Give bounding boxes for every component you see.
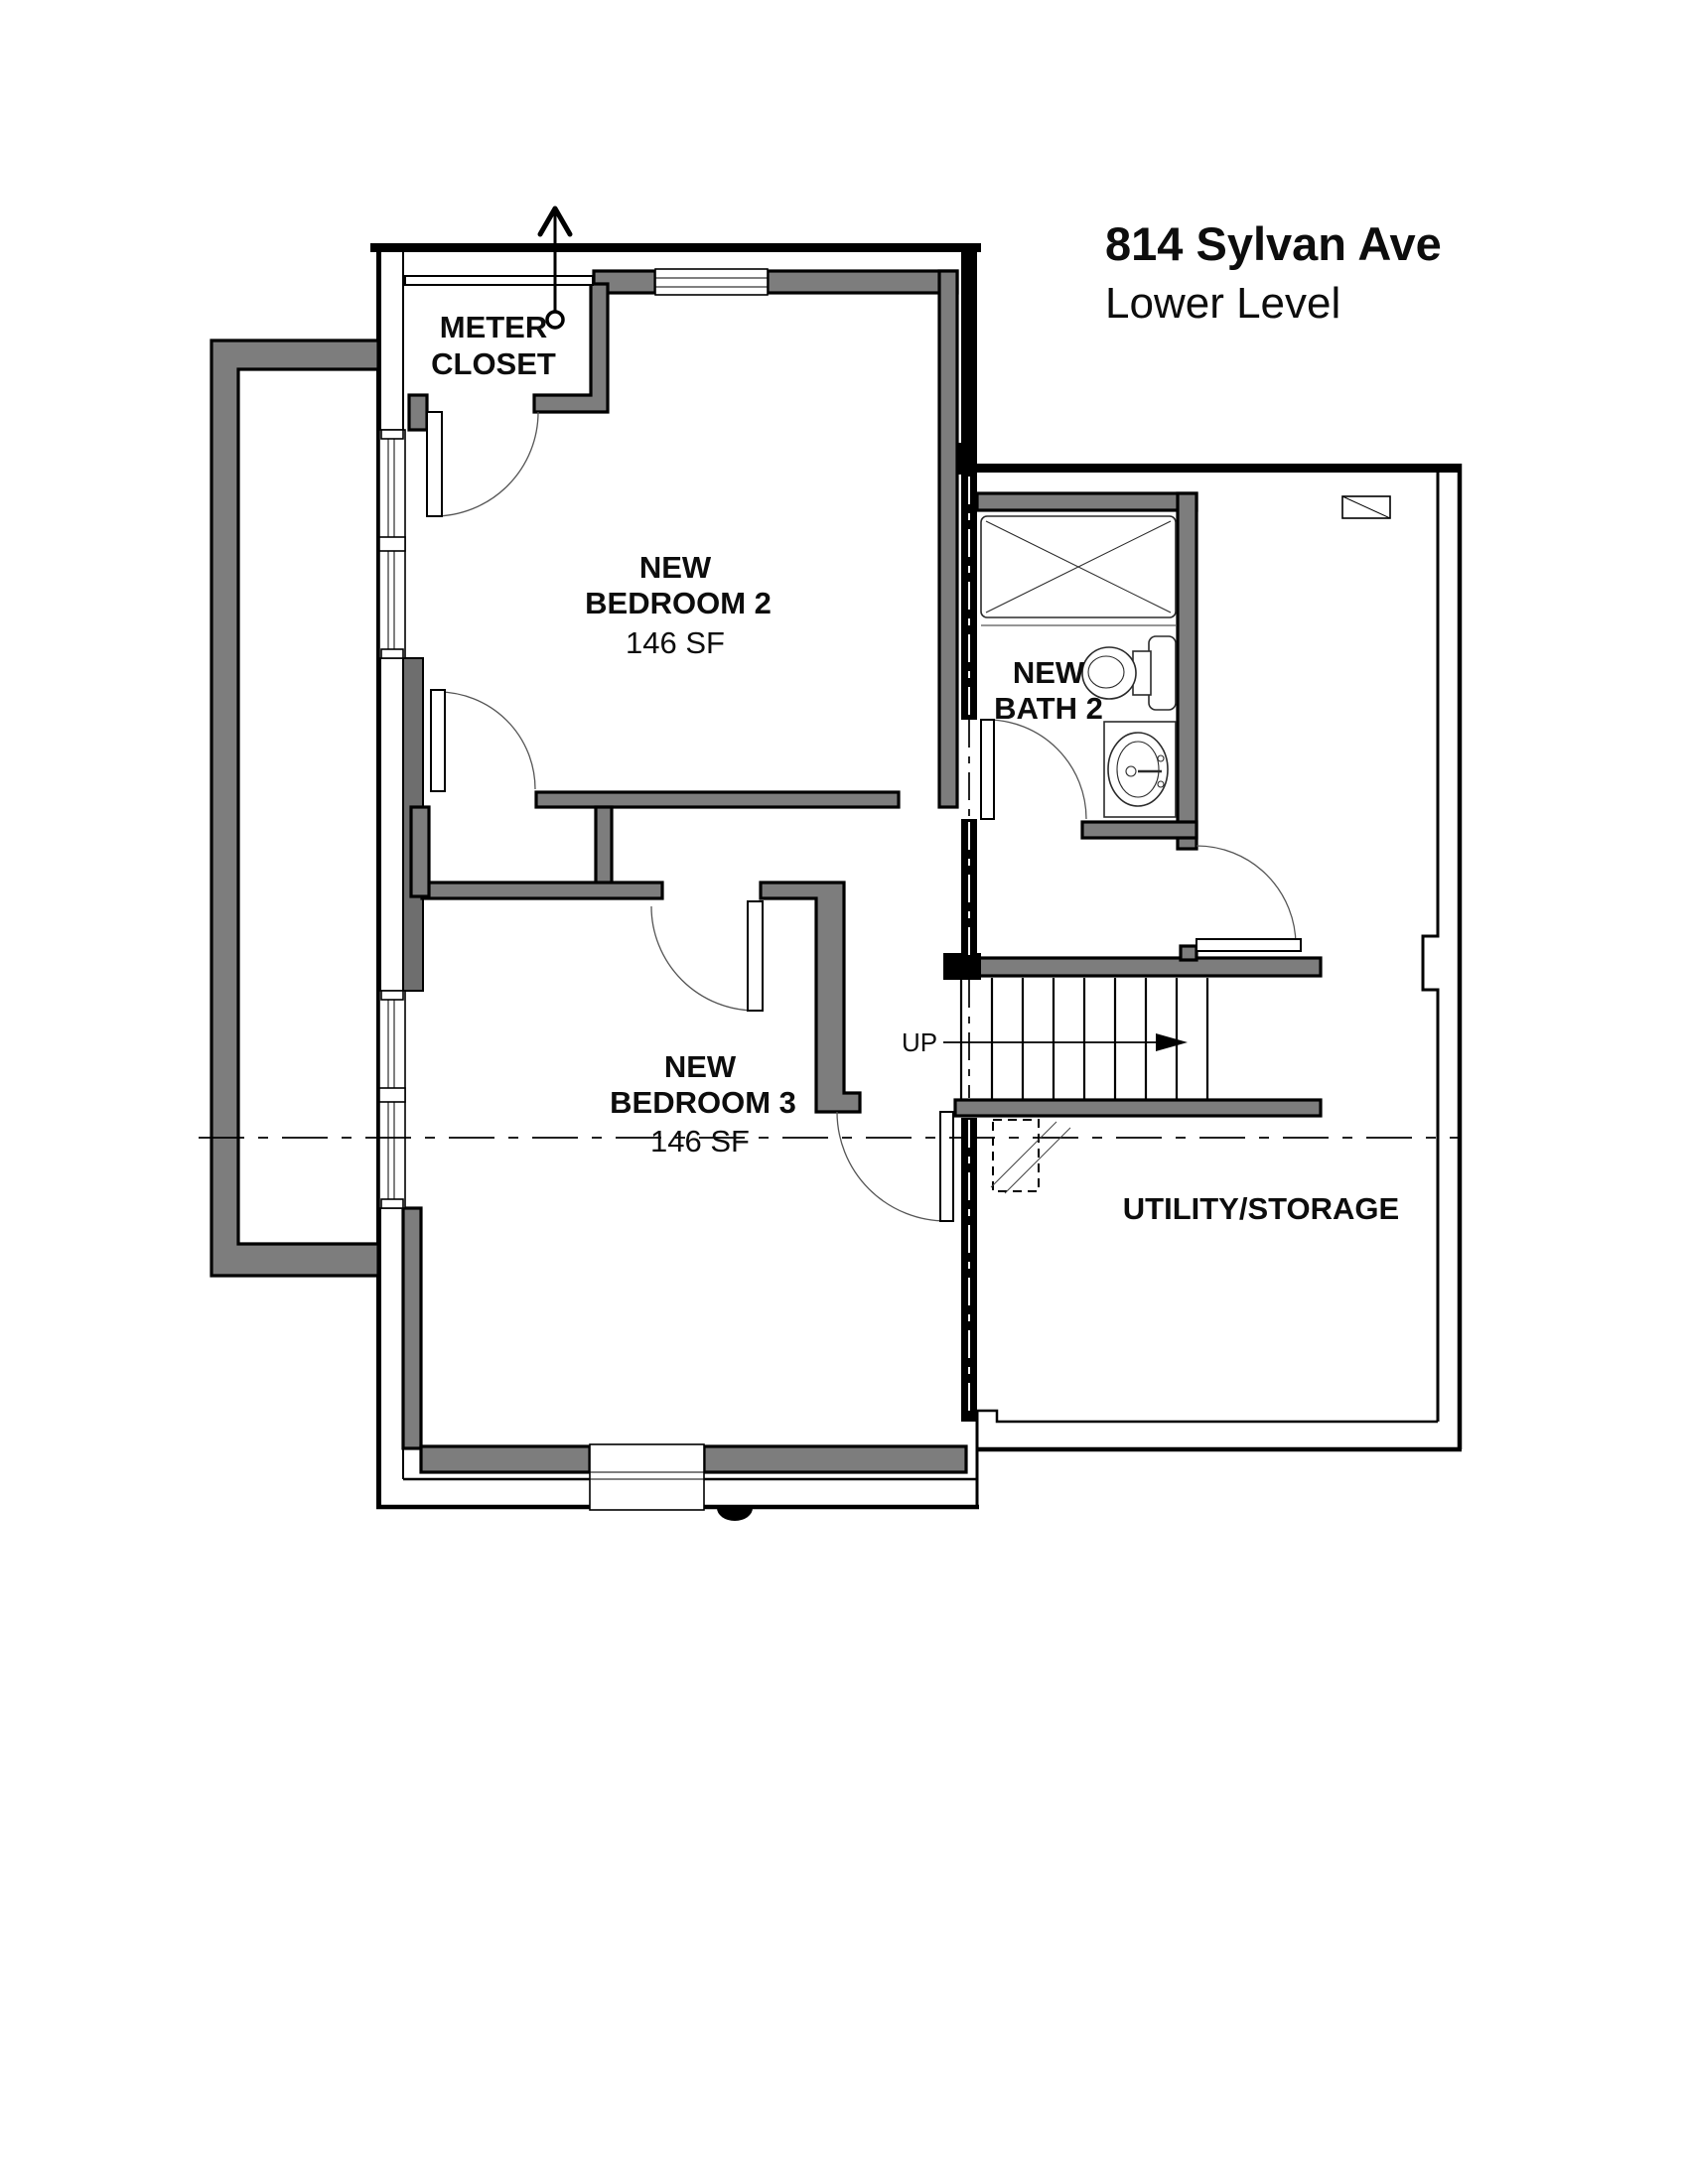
- page-title: 814 Sylvan Ave: [1105, 217, 1442, 270]
- up-arrow: [943, 1033, 1188, 1051]
- window-south: [590, 1444, 704, 1510]
- door-bath2: [981, 720, 1086, 819]
- stair-up-label: UP: [902, 1027, 937, 1057]
- door-bedroom2-closet: [431, 690, 535, 791]
- window-west-upper: [379, 430, 405, 658]
- page-subtitle: Lower Level: [1105, 279, 1340, 328]
- bedroom3-label-2: BEDROOM 3: [610, 1085, 796, 1120]
- meter-closet-label-2: CLOSET: [431, 346, 556, 381]
- bedroom2-area: 146 SF: [626, 625, 725, 660]
- door-bedroom3-hall: [651, 901, 763, 1011]
- bath2-label-1: NEW: [1013, 655, 1085, 690]
- door-bedroom3-stair: [837, 1112, 953, 1221]
- bedroom2-label-1: NEW: [639, 550, 712, 585]
- door-utility: [1196, 846, 1301, 951]
- bedroom3-area: 146 SF: [650, 1124, 750, 1159]
- door-meter-closet: [427, 412, 538, 516]
- meter-closet-label-1: METER: [440, 310, 548, 344]
- bath2-label-2: BATH 2: [994, 691, 1103, 726]
- stairs: UP: [902, 978, 1207, 1100]
- shower: [981, 516, 1176, 625]
- sink-vanity: [1104, 722, 1176, 817]
- utility-label: UTILITY/STORAGE: [1123, 1191, 1399, 1226]
- vent-recess: [1342, 496, 1390, 518]
- bedroom2-label-2: BEDROOM 2: [585, 586, 772, 620]
- labels: 814 Sylvan Ave Lower Level METER CLOSET …: [431, 217, 1442, 1226]
- meter-closet-north-wall: [405, 276, 593, 285]
- window-north: [655, 269, 768, 295]
- stair-wall-cap: [943, 953, 981, 980]
- floor-plan-sheet: UP: [0, 0, 1688, 2184]
- bedroom3-label-1: NEW: [664, 1049, 737, 1084]
- chase-dashed-outline: [991, 1120, 1070, 1193]
- window-west-lower: [379, 991, 405, 1208]
